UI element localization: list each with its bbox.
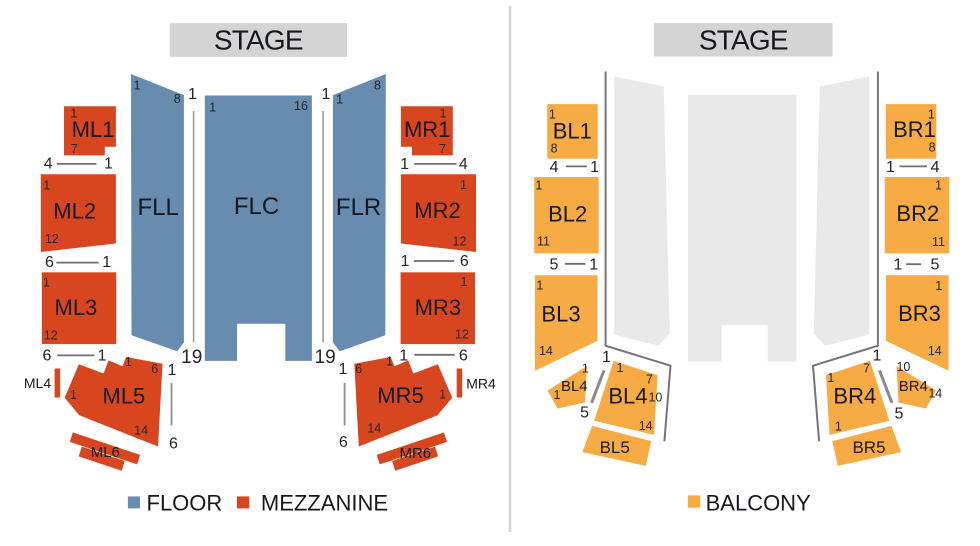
svg-text:1: 1 [400, 156, 409, 173]
svg-text:14: 14 [367, 422, 381, 436]
svg-text:1: 1 [399, 348, 408, 365]
svg-text:ML3: ML3 [55, 295, 98, 320]
svg-text:6: 6 [169, 435, 178, 452]
svg-text:BALCONY: BALCONY [706, 490, 811, 515]
svg-text:FLR: FLR [336, 194, 381, 221]
svg-text:MR3: MR3 [415, 295, 461, 320]
svg-text:6: 6 [460, 253, 469, 270]
svg-text:1: 1 [439, 388, 446, 402]
svg-text:STAGE: STAGE [699, 25, 788, 56]
svg-text:ML2: ML2 [53, 198, 96, 223]
svg-text:MR1: MR1 [404, 117, 450, 142]
svg-text:1: 1 [168, 362, 177, 379]
svg-text:1: 1 [590, 159, 599, 176]
svg-text:1: 1 [339, 361, 348, 378]
svg-text:1: 1 [322, 86, 331, 103]
svg-text:BL4: BL4 [561, 378, 588, 395]
svg-text:BR2: BR2 [896, 201, 939, 226]
svg-text:6: 6 [459, 348, 468, 365]
svg-text:FLOOR: FLOOR [147, 490, 223, 515]
svg-text:5: 5 [894, 405, 903, 422]
svg-text:6: 6 [42, 348, 51, 365]
svg-text:1: 1 [43, 179, 50, 193]
svg-text:1: 1 [935, 179, 942, 193]
svg-text:1: 1 [549, 107, 556, 121]
svg-text:1: 1 [104, 156, 113, 173]
svg-text:4: 4 [931, 159, 940, 176]
svg-text:19: 19 [315, 347, 336, 368]
svg-text:8: 8 [374, 79, 381, 93]
svg-text:1: 1 [43, 276, 50, 290]
svg-text:BR4: BR4 [899, 378, 928, 395]
svg-text:1: 1 [102, 254, 111, 271]
svg-text:11: 11 [537, 235, 550, 249]
svg-text:1: 1 [535, 179, 542, 193]
svg-text:7: 7 [71, 142, 78, 156]
svg-text:8: 8 [174, 92, 181, 106]
svg-text:ML6: ML6 [91, 444, 120, 461]
svg-text:6: 6 [339, 434, 348, 451]
svg-text:FLL: FLL [138, 194, 179, 221]
svg-text:8: 8 [551, 142, 558, 156]
svg-text:BL4: BL4 [608, 383, 647, 408]
svg-text:1: 1 [336, 92, 343, 106]
svg-text:14: 14 [539, 344, 553, 358]
svg-text:12: 12 [45, 232, 59, 246]
svg-text:1: 1 [125, 355, 132, 369]
svg-text:BL2: BL2 [548, 201, 587, 226]
svg-text:10: 10 [896, 360, 910, 374]
svg-text:12: 12 [453, 234, 467, 248]
svg-text:BL3: BL3 [541, 302, 580, 327]
svg-text:7: 7 [439, 142, 446, 156]
svg-text:MR2: MR2 [414, 198, 460, 223]
svg-text:8: 8 [929, 141, 936, 155]
svg-text:BR4: BR4 [833, 383, 876, 408]
svg-text:1: 1 [440, 107, 447, 121]
svg-text:1: 1 [70, 388, 77, 402]
svg-text:1: 1 [401, 253, 410, 270]
svg-text:12: 12 [44, 329, 58, 343]
svg-text:ML5: ML5 [103, 384, 146, 409]
svg-text:1: 1 [582, 362, 589, 376]
svg-text:1: 1 [98, 348, 107, 365]
svg-text:11: 11 [932, 235, 945, 249]
svg-text:FLC: FLC [234, 193, 279, 220]
svg-text:1: 1 [70, 107, 77, 121]
svg-text:MR6: MR6 [399, 445, 431, 462]
svg-text:5: 5 [580, 404, 589, 421]
svg-text:STAGE: STAGE [214, 25, 303, 56]
svg-text:1: 1 [188, 86, 197, 103]
svg-text:1: 1 [893, 257, 902, 274]
svg-text:19: 19 [181, 347, 202, 368]
svg-text:7: 7 [863, 362, 870, 376]
svg-text:14: 14 [928, 387, 942, 401]
svg-text:1: 1 [835, 420, 842, 434]
svg-text:14: 14 [928, 344, 942, 358]
svg-text:6: 6 [355, 362, 362, 376]
svg-text:1: 1 [602, 349, 611, 366]
svg-text:1: 1 [589, 257, 598, 274]
svg-text:1: 1 [935, 279, 942, 293]
svg-text:4: 4 [459, 156, 468, 173]
svg-text:4: 4 [550, 159, 559, 176]
svg-text:MR5: MR5 [377, 383, 423, 408]
svg-text:5: 5 [930, 257, 939, 274]
svg-text:1: 1 [873, 348, 882, 365]
svg-text:BR3: BR3 [898, 301, 941, 326]
svg-text:1: 1 [461, 275, 468, 289]
svg-text:1: 1 [460, 178, 467, 192]
svg-text:MR4: MR4 [466, 376, 496, 392]
svg-text:5: 5 [549, 257, 558, 274]
svg-text:1: 1 [928, 107, 935, 121]
svg-text:6: 6 [151, 362, 158, 376]
svg-text:10: 10 [648, 390, 662, 404]
svg-text:BL1: BL1 [553, 119, 592, 144]
svg-text:MEZZANINE: MEZZANINE [261, 490, 388, 515]
svg-text:ML4: ML4 [24, 375, 51, 391]
svg-text:1: 1 [617, 361, 624, 375]
svg-text:1: 1 [536, 279, 543, 293]
svg-text:1: 1 [827, 371, 834, 385]
svg-text:1: 1 [386, 355, 393, 369]
svg-text:14: 14 [134, 424, 148, 438]
svg-text:12: 12 [455, 327, 469, 341]
svg-text:1: 1 [886, 159, 895, 176]
svg-text:BR5: BR5 [852, 438, 885, 457]
svg-text:7: 7 [646, 372, 653, 386]
svg-text:BL5: BL5 [600, 438, 630, 457]
svg-text:14: 14 [639, 419, 653, 433]
svg-text:4: 4 [44, 156, 53, 173]
svg-text:6: 6 [45, 254, 54, 271]
svg-text:16: 16 [294, 99, 308, 113]
svg-text:1: 1 [554, 388, 561, 402]
svg-text:ML1: ML1 [72, 117, 115, 142]
svg-text:1: 1 [134, 79, 141, 93]
svg-text:1: 1 [209, 100, 216, 114]
